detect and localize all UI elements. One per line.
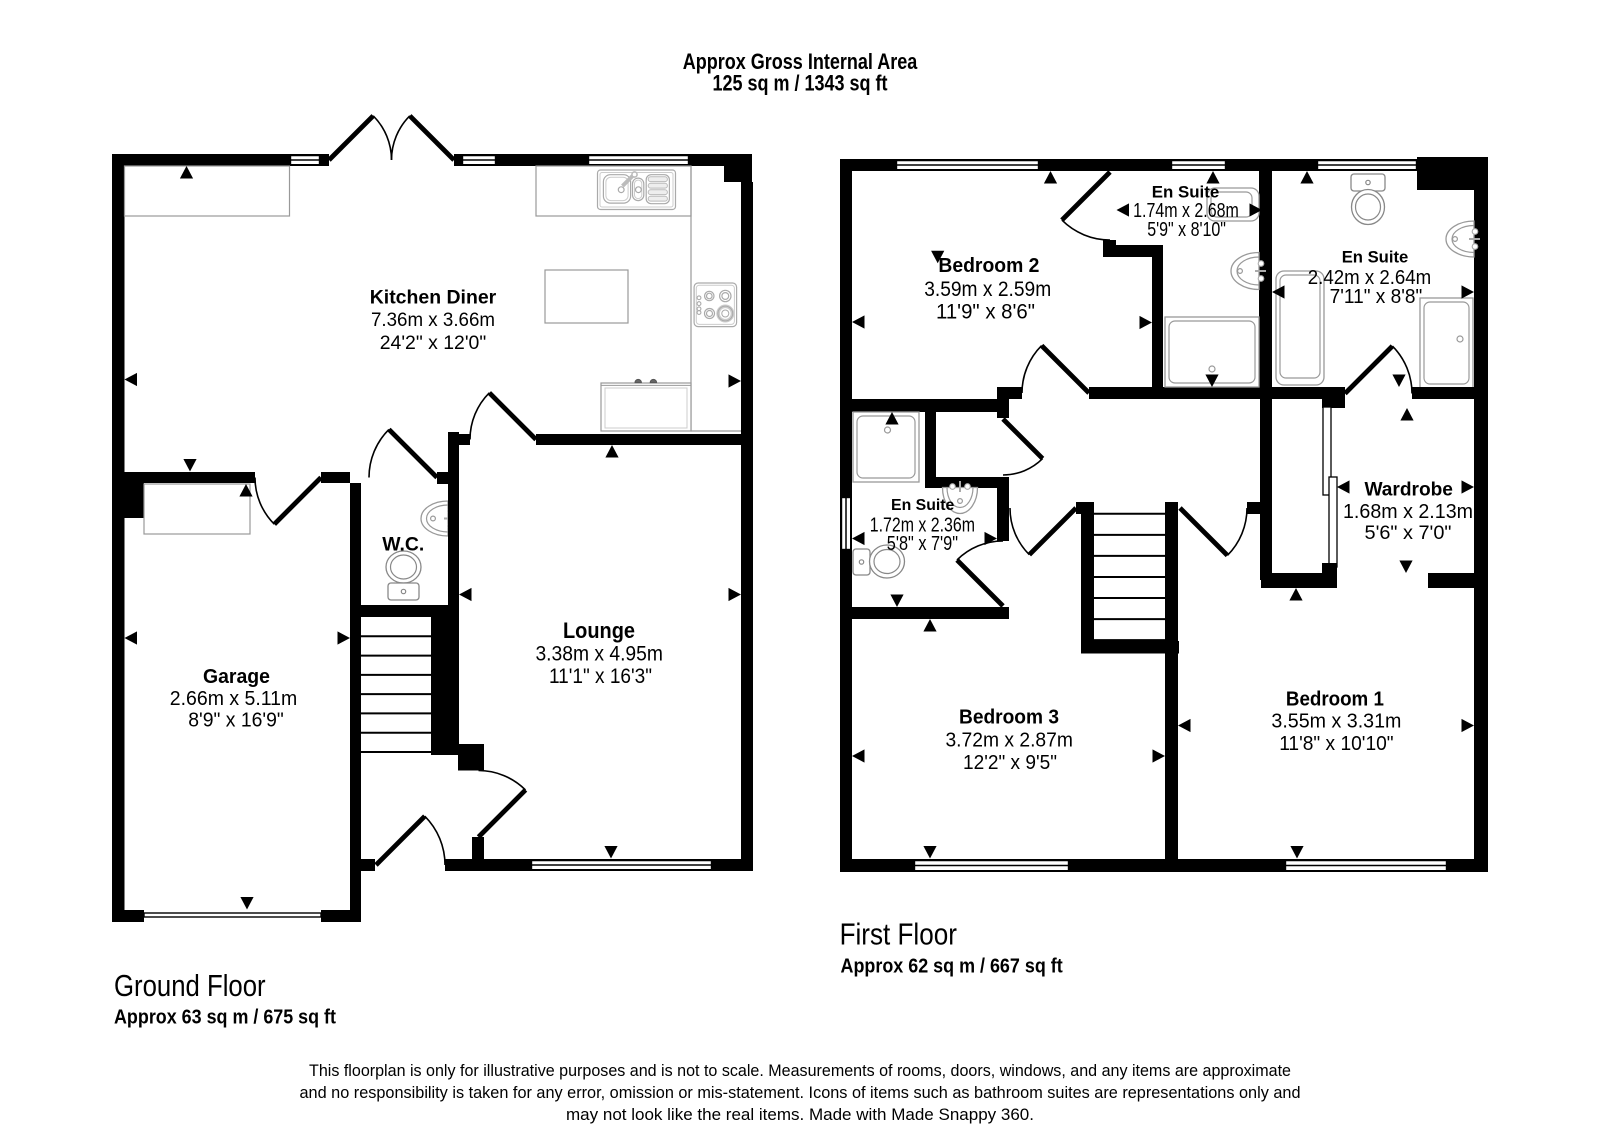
svg-text:3.38m x 4.95m: 3.38m x 4.95m bbox=[535, 643, 663, 666]
svg-text:11'1" x 16'3": 11'1" x 16'3" bbox=[549, 665, 652, 688]
svg-text:125 sq m / 1343 sq ft: 125 sq m / 1343 sq ft bbox=[713, 71, 889, 96]
svg-text:24'2" x 12'0": 24'2" x 12'0" bbox=[380, 332, 487, 354]
svg-text:W.C.: W.C. bbox=[382, 534, 424, 556]
svg-text:Approx 62 sq m / 667 sq ft: Approx 62 sq m / 667 sq ft bbox=[841, 955, 1063, 977]
svg-text:may not look like the real ite: may not look like the real items. Made w… bbox=[566, 1105, 1034, 1124]
svg-text:3.59m x 2.59m: 3.59m x 2.59m bbox=[924, 278, 1051, 301]
svg-text:11'8" x 10'10": 11'8" x 10'10" bbox=[1279, 733, 1393, 755]
svg-text:11'9" x 8'6": 11'9" x 8'6" bbox=[936, 301, 1035, 324]
svg-text:Bedroom 3: Bedroom 3 bbox=[959, 707, 1059, 729]
svg-text:Lounge: Lounge bbox=[563, 618, 635, 643]
svg-text:7'11" x 8'8": 7'11" x 8'8" bbox=[1330, 286, 1423, 308]
svg-text:Approx 63 sq m / 675 sq ft: Approx 63 sq m / 675 sq ft bbox=[114, 1007, 336, 1029]
svg-text:7.36m x 3.66m: 7.36m x 3.66m bbox=[371, 309, 495, 331]
svg-text:First Floor: First Floor bbox=[840, 917, 957, 951]
svg-text:En Suite: En Suite bbox=[891, 497, 955, 514]
svg-text:1.68m x 2.13m: 1.68m x 2.13m bbox=[1343, 501, 1473, 523]
svg-text:5'6" x 7'0": 5'6" x 7'0" bbox=[1365, 522, 1452, 544]
svg-text:8'9" x 16'9": 8'9" x 16'9" bbox=[188, 710, 284, 732]
svg-text:5'8" x 7'9": 5'8" x 7'9" bbox=[887, 533, 958, 555]
svg-text:5'9" x 8'10": 5'9" x 8'10" bbox=[1147, 219, 1226, 241]
svg-text:2.66m x 5.11m: 2.66m x 5.11m bbox=[170, 688, 298, 710]
svg-text:En Suite: En Suite bbox=[1342, 248, 1409, 267]
svg-text:En Suite: En Suite bbox=[1152, 184, 1220, 202]
svg-text:Wardrobe: Wardrobe bbox=[1364, 480, 1453, 501]
svg-text:Garage: Garage bbox=[203, 666, 270, 688]
svg-text:Kitchen Diner: Kitchen Diner bbox=[370, 287, 497, 309]
svg-text:Ground Floor: Ground Floor bbox=[114, 969, 266, 1003]
svg-text:3.55m x 3.31m: 3.55m x 3.31m bbox=[1271, 711, 1401, 733]
svg-text:Bedroom 1: Bedroom 1 bbox=[1286, 688, 1384, 710]
svg-text:12'2" x 9'5": 12'2" x 9'5" bbox=[963, 752, 1057, 774]
svg-text:3.72m x 2.87m: 3.72m x 2.87m bbox=[945, 730, 1073, 752]
svg-text:This floorplan is only for ill: This floorplan is only for illustrative … bbox=[309, 1061, 1291, 1080]
svg-text:Bedroom 2: Bedroom 2 bbox=[938, 255, 1039, 277]
svg-text:and no responsibility is taken: and no responsibility is taken for any e… bbox=[300, 1083, 1301, 1102]
